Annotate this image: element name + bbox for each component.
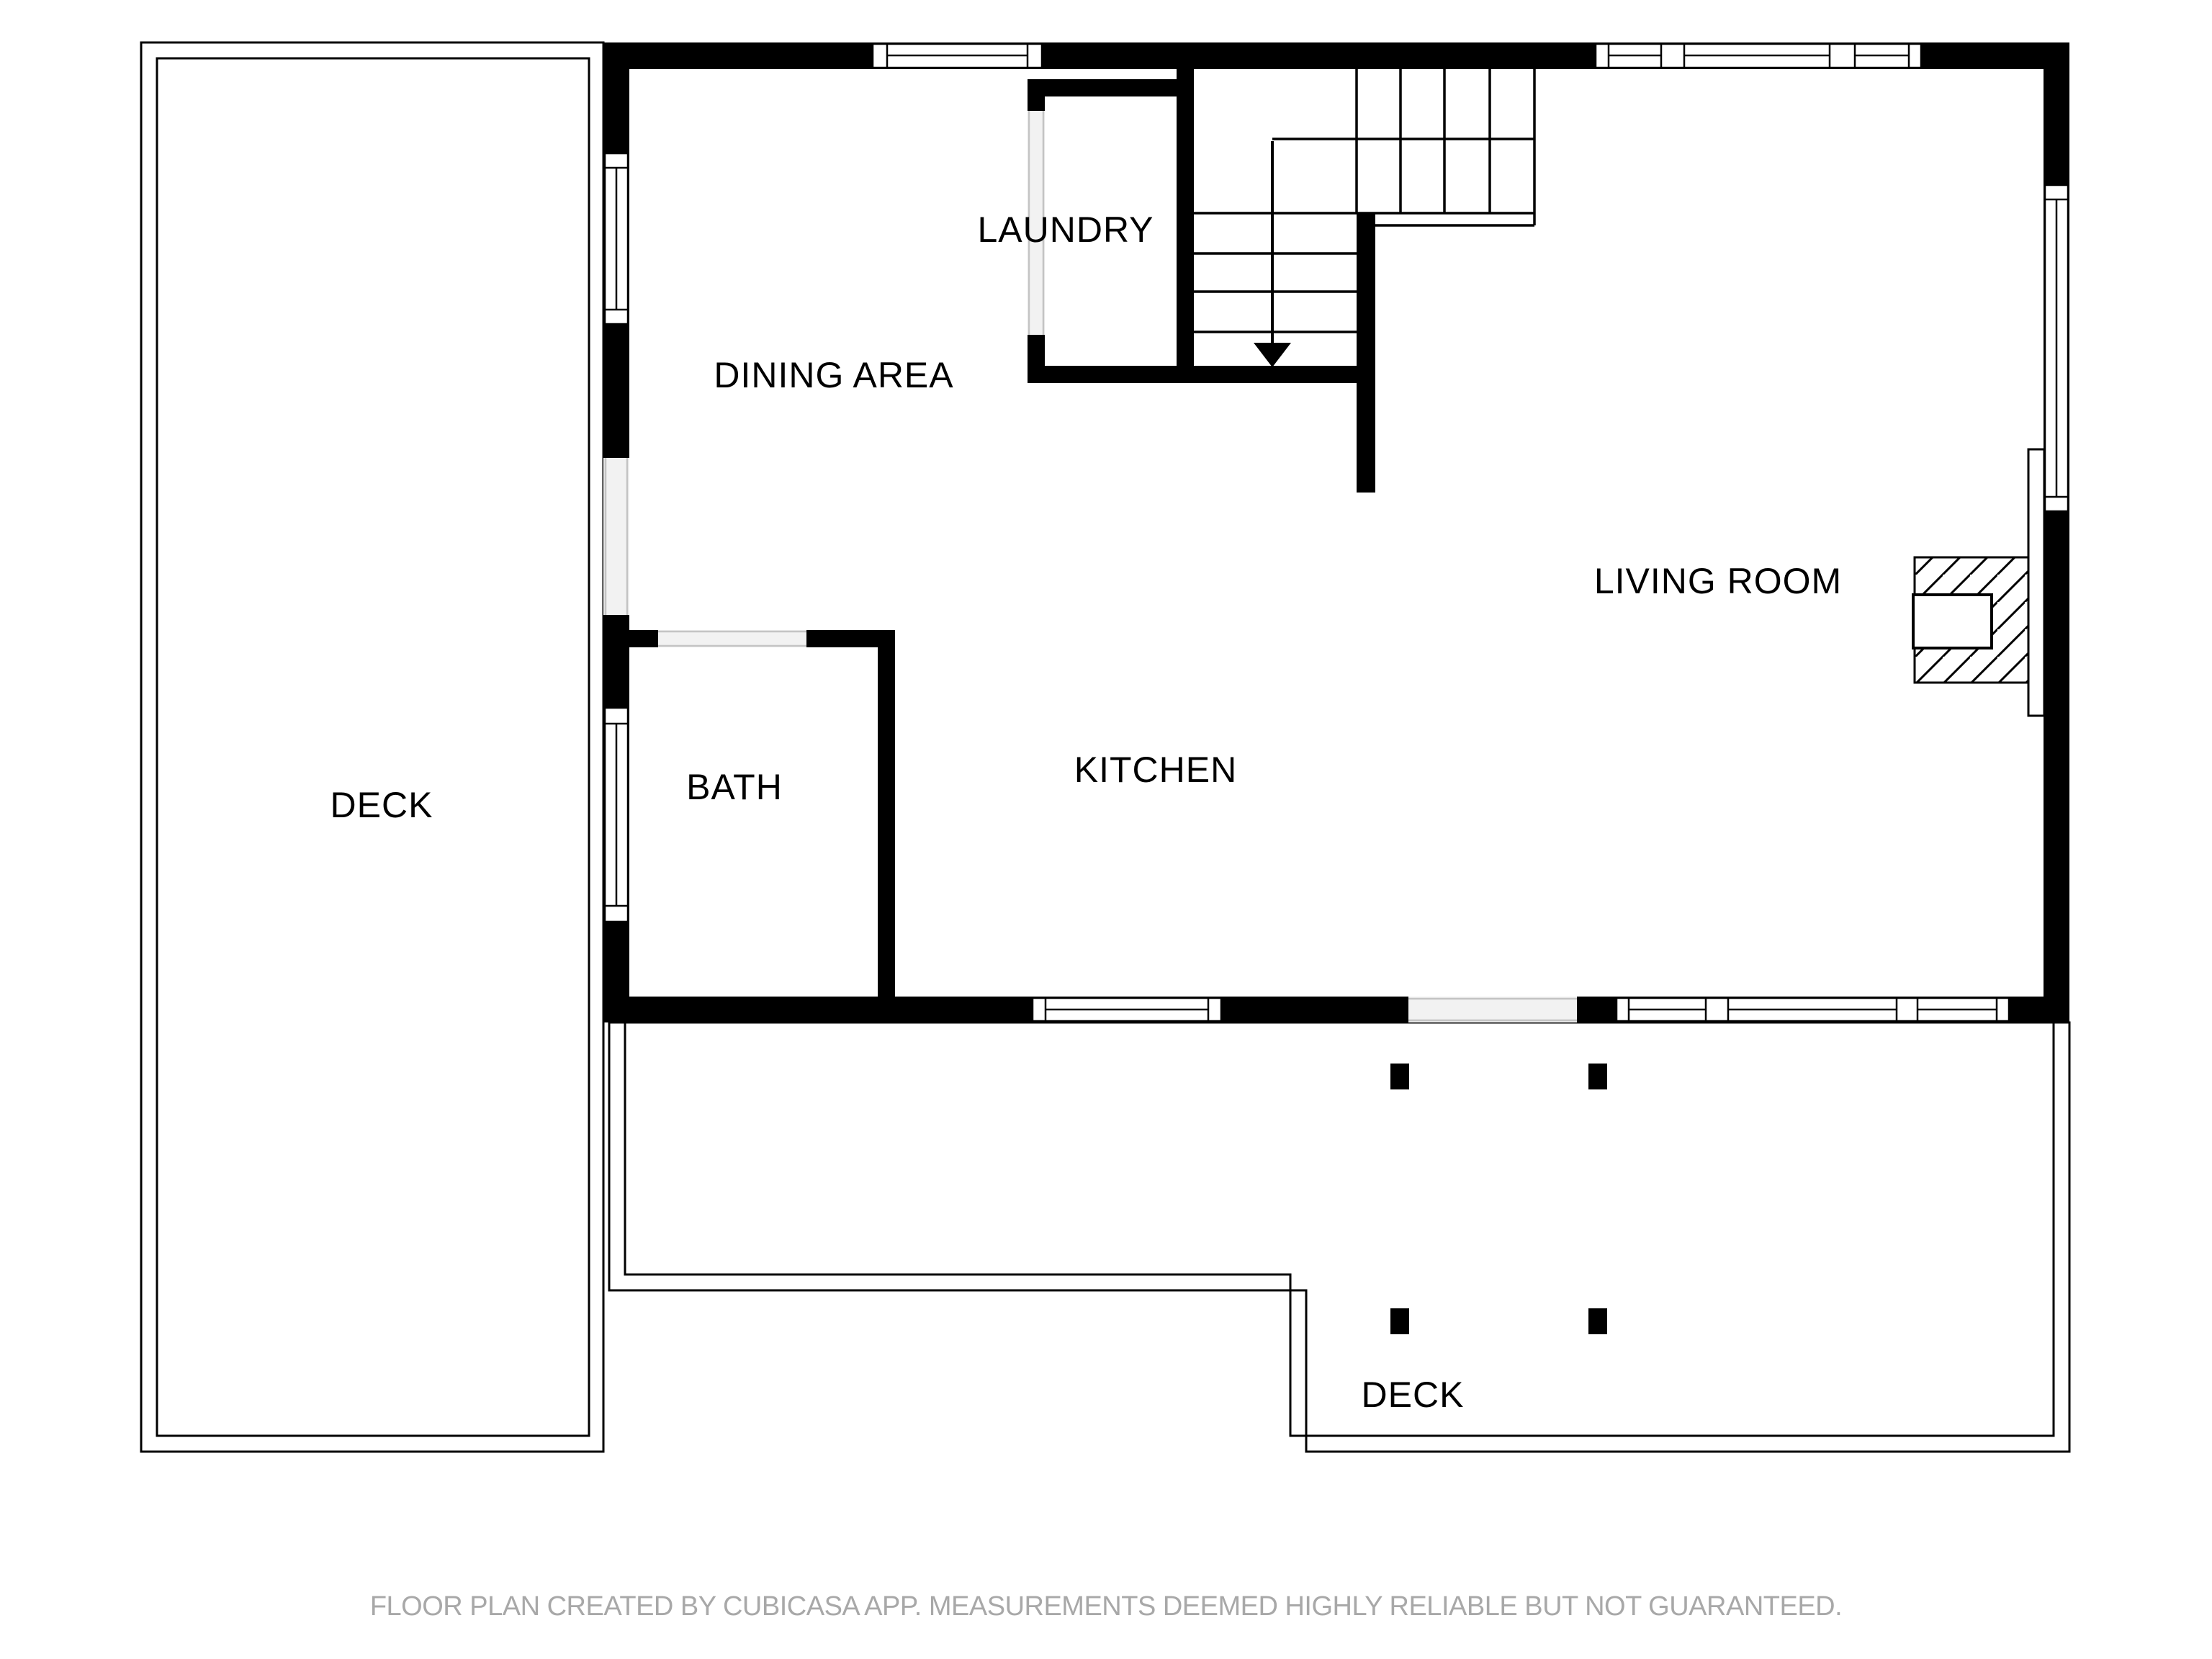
fireplace-icon xyxy=(1913,449,2044,716)
floor-plan-page: DINING AREA LAUNDRY LIVING ROOM KITCHEN … xyxy=(0,0,2212,1659)
exterior-walls xyxy=(603,42,2069,1022)
deck-post-icon xyxy=(1390,1064,1409,1089)
laundry-wall-top xyxy=(1028,79,1194,96)
footer-disclaimer: FLOOR PLAN CREATED BY CUBICASA APP. MEAS… xyxy=(370,1591,1842,1622)
deck-left-opening xyxy=(603,458,629,615)
floor-plan-canvas: DINING AREA LAUNDRY LIVING ROOM KITCHEN … xyxy=(0,0,2212,1659)
deck-post-icon xyxy=(1588,1308,1607,1334)
window-top-right-group xyxy=(1596,44,1921,68)
deck-bottom xyxy=(609,1022,2069,1452)
window-right-wall xyxy=(2045,185,2068,511)
deck-bottom-opening xyxy=(1408,997,1577,1022)
window-bottom-right-group xyxy=(1617,998,2009,1021)
label-dining-area: DINING AREA xyxy=(714,355,953,395)
laundry-stair-wall-bottom xyxy=(1028,366,1375,383)
laundry-stair-shared-wall xyxy=(1177,69,1194,383)
window-left-lower xyxy=(605,708,628,922)
window-top-left xyxy=(873,44,1042,68)
window-left-upper xyxy=(605,153,628,324)
bath-wall-top-left-stub xyxy=(603,630,658,647)
deck-left-outer-border xyxy=(141,42,603,1452)
bath-door-opening xyxy=(658,630,806,647)
windows xyxy=(605,44,2068,1021)
label-laundry: LAUNDRY xyxy=(977,210,1154,250)
label-living-room: LIVING ROOM xyxy=(1594,561,1842,601)
stair-wall-right xyxy=(1357,213,1375,493)
laundry-wall-left-stub-top xyxy=(1028,79,1045,111)
window-bottom-kitchen xyxy=(1033,998,1221,1021)
deck-left xyxy=(141,42,603,1452)
label-deck-bottom: DECK xyxy=(1362,1375,1465,1415)
deck-post-icon xyxy=(1390,1308,1409,1334)
deck-post-icon xyxy=(1588,1064,1607,1089)
chimney-breast xyxy=(2028,449,2044,716)
label-deck-left: DECK xyxy=(331,785,433,825)
label-kitchen: KITCHEN xyxy=(1074,750,1237,790)
deck-bottom-outer-border xyxy=(609,1022,2069,1452)
bath-wall-right xyxy=(878,630,895,1022)
firebox xyxy=(1913,595,1992,648)
label-bath: BATH xyxy=(686,767,783,807)
